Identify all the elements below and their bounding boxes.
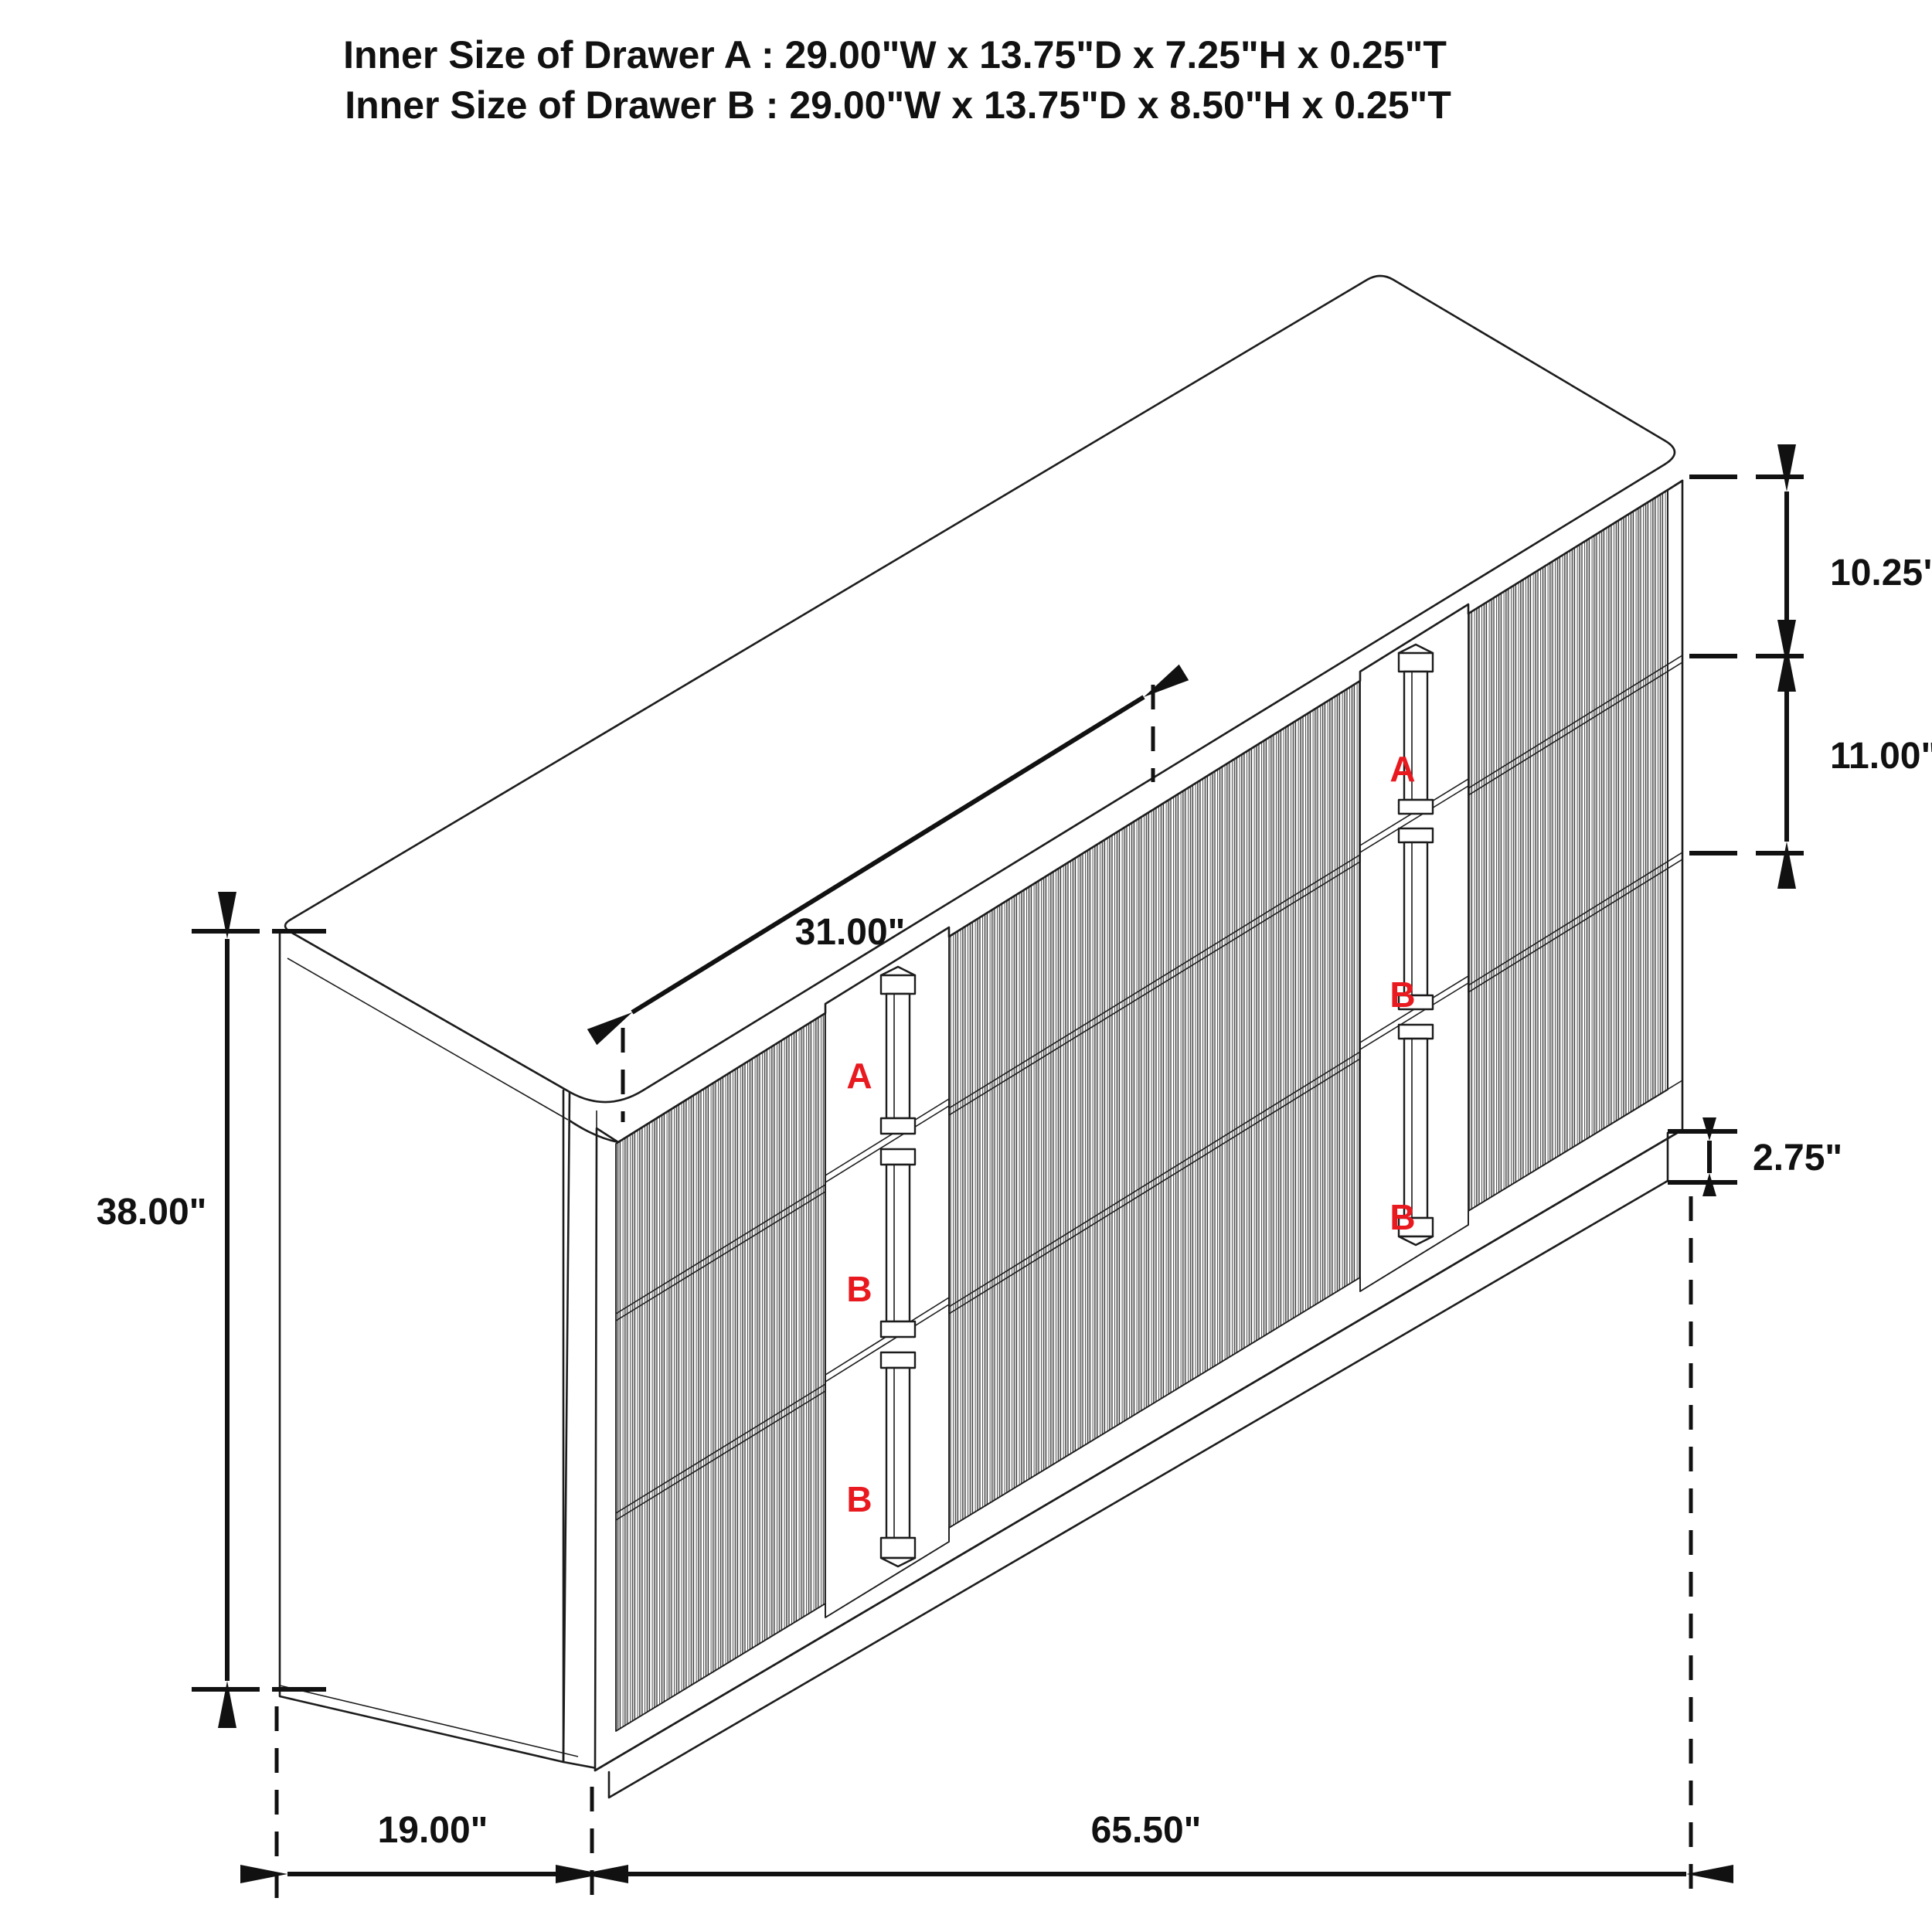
middle-drawer-height-value: 11.00" <box>1830 736 1932 777</box>
top-width-value: 31.00" <box>795 912 906 953</box>
left-drawer-b1-label: B <box>846 1269 872 1309</box>
dimension-middle-drawer-height: 11.00" <box>1689 667 1932 853</box>
title-line-1: Inner Size of Drawer A : 29.00"W x 13.75… <box>343 33 1447 77</box>
base-height-value: 2.75" <box>1753 1138 1842 1179</box>
dresser-diagram-canvas: A B B A B B 38.00" 19.00" 65.50" 10.25" <box>0 0 1932 1932</box>
furniture-dimension-diagram: A B B A B B 38.00" 19.00" 65.50" 10.25" <box>0 0 1932 1932</box>
depth-value: 19.00" <box>378 1810 488 1851</box>
right-drawer-b1-label: B <box>1389 975 1415 1015</box>
right-drawer-a-label: A <box>1389 749 1415 789</box>
width-value: 65.50" <box>1091 1810 1202 1851</box>
right-drawer-column-fluting <box>1468 490 1668 1211</box>
title-block: Inner Size of Drawer A : 29.00"W x 13.75… <box>343 33 1451 127</box>
overall-height-value: 38.00" <box>97 1192 207 1233</box>
left-drawer-handle <box>881 967 915 1566</box>
dimension-base-height: 2.75" <box>1668 1131 1842 1182</box>
right-drawer-handle <box>1399 645 1433 1245</box>
left-drawer-a-label: A <box>846 1056 872 1096</box>
left-drawer-b2-label: B <box>846 1479 872 1519</box>
right-drawer-b2-label: B <box>1389 1197 1415 1237</box>
top-drawer-height-value: 10.25" <box>1830 553 1932 594</box>
title-line-2: Inner Size of Drawer B : 29.00"W x 13.75… <box>345 83 1451 127</box>
dimension-top-drawer-height: 10.25" <box>1689 477 1932 656</box>
